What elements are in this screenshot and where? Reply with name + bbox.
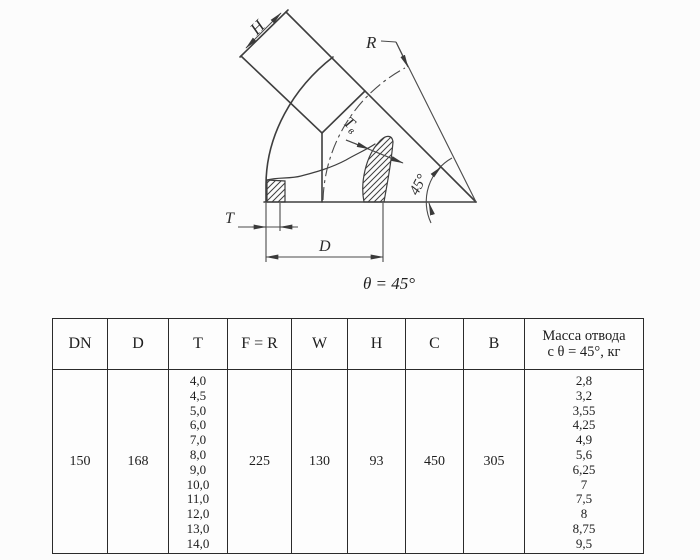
list-value: 3,55: [525, 404, 643, 419]
list-value: 12,0: [169, 507, 227, 522]
tv-wall-label: Tв: [339, 114, 362, 137]
cell-b: 305: [464, 370, 525, 554]
cell-c: 450: [406, 370, 464, 554]
list-value: 14,0: [169, 537, 227, 552]
dimensions-table: DN D T F = R W H C B Масса отвода с θ = …: [52, 318, 644, 554]
col-header-b: B: [464, 319, 525, 370]
radius-arrow: [396, 42, 408, 67]
col-header-c: C: [406, 319, 464, 370]
col-header-d: D: [108, 319, 169, 370]
tv-arrow-inner: [346, 140, 369, 149]
list-value: 4,5: [169, 389, 227, 404]
break-line-wavy: [267, 144, 375, 180]
list-value: 7,5: [525, 492, 643, 507]
cell-f-r: 225: [228, 370, 292, 554]
list-value: 6,0: [169, 418, 227, 433]
h-dim-label: H: [246, 15, 270, 39]
list-value: 9,5: [525, 537, 643, 552]
cell-t-values: 4,04,55,06,07,08,09,010,011,012,013,014,…: [169, 370, 228, 554]
list-value: 7: [525, 478, 643, 493]
elbow-technical-drawing: H R T D 45° Tв θ = 45°: [0, 0, 700, 312]
t-dim-label: T: [225, 210, 235, 227]
table-header-row: DN D T F = R W H C B Масса отвода с θ = …: [53, 319, 644, 370]
list-value: 5,0: [169, 404, 227, 419]
list-value: 4,25: [525, 418, 643, 433]
col-header-t: T: [169, 319, 228, 370]
list-value: 11,0: [169, 492, 227, 507]
d-dim-label: D: [318, 238, 331, 255]
radius-leader: [381, 41, 396, 42]
list-value: 10,0: [169, 478, 227, 493]
list-value: 9,0: [169, 463, 227, 478]
list-value: 5,6: [525, 448, 643, 463]
angle-arc: [426, 158, 452, 223]
cell-d: 168: [108, 370, 169, 554]
list-value: 8,0: [169, 448, 227, 463]
list-value: 8: [525, 507, 643, 522]
list-value: 3,2: [525, 389, 643, 404]
table-data-row: 150 168 4,04,55,06,07,08,09,010,011,012,…: [53, 370, 644, 554]
list-value: 2,8: [525, 374, 643, 389]
cell-h: 93: [348, 370, 406, 554]
list-value: 13,0: [169, 522, 227, 537]
mass-header-line1: Масса отвода: [525, 328, 643, 344]
col-header-h: H: [348, 319, 406, 370]
col-header-mass: Масса отвода с θ = 45°, кг: [525, 319, 644, 370]
list-value: 6,25: [525, 463, 643, 478]
cell-dn: 150: [53, 370, 108, 554]
catalog-page: H R T D 45° Tв θ = 45° DN D T F = R W H …: [0, 0, 700, 560]
col-header-w: W: [292, 319, 348, 370]
angle-arrow-upper: [433, 167, 441, 175]
col-header-f-r: F = R: [228, 319, 292, 370]
wall-section-inner-hatched: [363, 136, 393, 202]
list-value: 7,0: [169, 433, 227, 448]
cell-w: 130: [292, 370, 348, 554]
mass-header-line2: с θ = 45°, кг: [525, 344, 643, 360]
theta-angle-caption: θ = 45°: [363, 274, 415, 293]
list-value: 4,0: [169, 374, 227, 389]
wall-section-left-hatched: [267, 180, 285, 202]
list-value: 4,9: [525, 433, 643, 448]
col-header-dn: DN: [53, 319, 108, 370]
angle-arrow-lower: [429, 203, 432, 213]
radius-label: R: [365, 33, 377, 52]
cell-mass-values: 2,83,23,554,254,95,66,2577,588,759,5: [525, 370, 644, 554]
list-value: 8,75: [525, 522, 643, 537]
